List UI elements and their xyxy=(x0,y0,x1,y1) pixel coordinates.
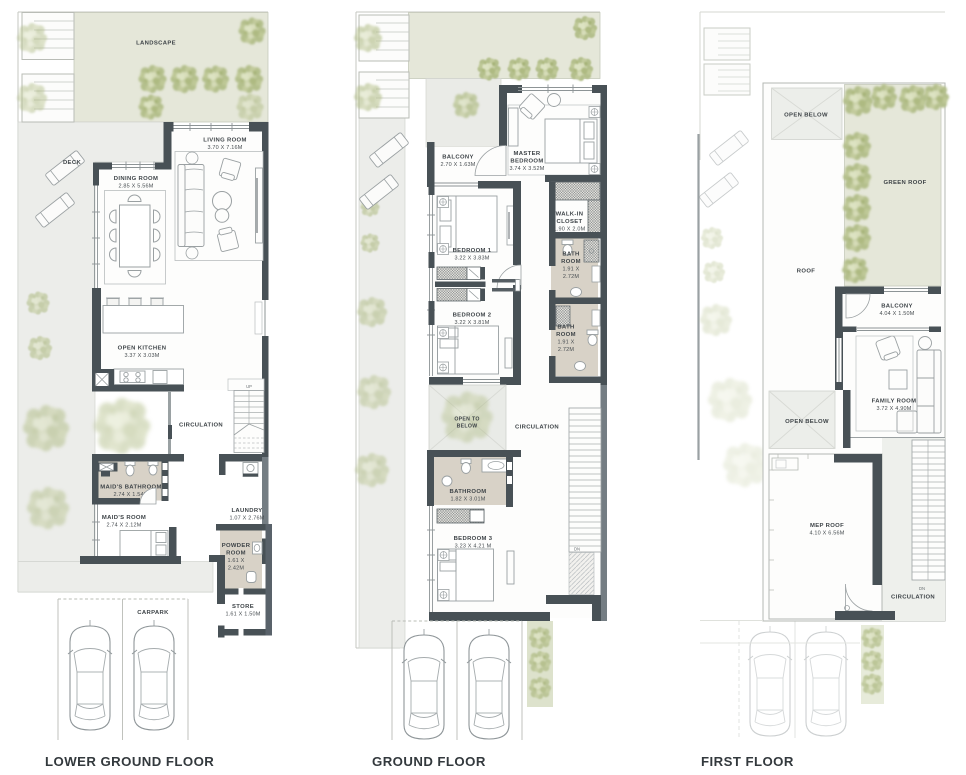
svg-text:OPEN BELOW: OPEN BELOW xyxy=(784,113,828,119)
svg-text:MEP ROOF: MEP ROOF xyxy=(810,523,844,529)
svg-text:LOWER GROUND FLOOR: LOWER GROUND FLOOR xyxy=(45,754,214,769)
svg-text:LAUNDRY: LAUNDRY xyxy=(231,508,262,514)
svg-text:DINING ROOM: DINING ROOM xyxy=(114,176,158,182)
svg-text:2.74 X 2.12M: 2.74 X 2.12M xyxy=(106,523,141,529)
svg-text:CIRCULATION: CIRCULATION xyxy=(179,423,223,429)
svg-text:ROOM: ROOM xyxy=(561,259,581,265)
svg-text:BEDROOM 1: BEDROOM 1 xyxy=(453,248,492,254)
svg-text:MASTER: MASTER xyxy=(514,151,541,157)
svg-text:3.72 X 4.90M: 3.72 X 4.90M xyxy=(876,406,911,412)
svg-text:GREEN ROOF: GREEN ROOF xyxy=(883,180,926,186)
svg-text:UP: UP xyxy=(246,384,252,389)
svg-text:2.70 X 1.63M: 2.70 X 1.63M xyxy=(440,162,475,168)
svg-text:DN: DN xyxy=(919,586,925,591)
svg-text:CLOSET: CLOSET xyxy=(557,219,583,225)
svg-text:1.61 X: 1.61 X xyxy=(227,558,244,564)
svg-text:ROOM: ROOM xyxy=(226,551,246,557)
svg-text:1.91 X: 1.91 X xyxy=(557,340,574,346)
svg-text:3.70 X 7.16M: 3.70 X 7.16M xyxy=(207,145,242,151)
svg-text:CARPARK: CARPARK xyxy=(137,610,169,616)
svg-text:WALK-IN: WALK-IN xyxy=(556,212,584,218)
svg-text:OPEN KITCHEN: OPEN KITCHEN xyxy=(118,346,167,352)
svg-text:BATH: BATH xyxy=(557,325,574,331)
svg-text:BATHROOM: BATHROOM xyxy=(449,489,486,495)
svg-text:DN: DN xyxy=(574,547,580,552)
svg-text:1.07 X 2.76M: 1.07 X 2.76M xyxy=(229,516,264,522)
svg-text:BEDROOM: BEDROOM xyxy=(510,159,543,165)
svg-text:1.90 X 2.0M: 1.90 X 2.0M xyxy=(554,227,586,233)
svg-text:OPEN TO: OPEN TO xyxy=(454,417,479,423)
svg-text:ROOM: ROOM xyxy=(556,332,576,338)
svg-text:BATH: BATH xyxy=(562,252,579,258)
svg-text:2.42M: 2.42M xyxy=(228,566,245,572)
svg-text:DECK: DECK xyxy=(63,160,81,166)
svg-text:BALCONY: BALCONY xyxy=(442,155,474,161)
svg-text:BEDROOM 2: BEDROOM 2 xyxy=(453,313,492,319)
svg-text:2.72M: 2.72M xyxy=(563,274,580,280)
svg-text:1.91 X: 1.91 X xyxy=(562,267,579,273)
svg-text:FIRST FLOOR: FIRST FLOOR xyxy=(701,754,794,769)
svg-text:4.10 X 6.56M: 4.10 X 6.56M xyxy=(809,531,844,537)
svg-text:3.37 X 3.03M: 3.37 X 3.03M xyxy=(124,353,159,359)
svg-text:2.85 X 5.56M: 2.85 X 5.56M xyxy=(118,184,153,190)
svg-text:POWDER: POWDER xyxy=(222,543,251,549)
svg-text:FAMILY ROOM: FAMILY ROOM xyxy=(872,399,917,405)
svg-text:MAID'S ROOM: MAID'S ROOM xyxy=(102,515,146,521)
svg-text:BEDROOM 3: BEDROOM 3 xyxy=(454,536,493,542)
svg-text:4.04 X 1.50M: 4.04 X 1.50M xyxy=(879,311,914,317)
svg-text:STORE: STORE xyxy=(232,604,254,610)
svg-text:3.22 X 3.83M: 3.22 X 3.83M xyxy=(454,256,489,262)
svg-text:3.74 X 3.52M: 3.74 X 3.52M xyxy=(509,166,544,172)
svg-text:GROUND FLOOR: GROUND FLOOR xyxy=(372,754,486,769)
svg-text:2.72M: 2.72M xyxy=(558,347,575,353)
svg-text:CIRCULATION: CIRCULATION xyxy=(515,425,559,431)
svg-text:1.82 X 3.01M: 1.82 X 3.01M xyxy=(450,497,485,503)
svg-text:BELOW: BELOW xyxy=(457,424,478,430)
svg-text:ROOF: ROOF xyxy=(797,269,815,275)
svg-text:CIRCULATION: CIRCULATION xyxy=(891,595,935,601)
svg-text:LANDSCAPE: LANDSCAPE xyxy=(136,41,176,47)
svg-text:BALCONY: BALCONY xyxy=(881,304,913,310)
svg-text:LIVING ROOM: LIVING ROOM xyxy=(203,138,246,144)
svg-text:OPEN BELOW: OPEN BELOW xyxy=(785,419,829,425)
svg-text:1.61 X 1.50M: 1.61 X 1.50M xyxy=(225,612,260,618)
svg-text:3.22 X 3.81M: 3.22 X 3.81M xyxy=(454,320,489,326)
